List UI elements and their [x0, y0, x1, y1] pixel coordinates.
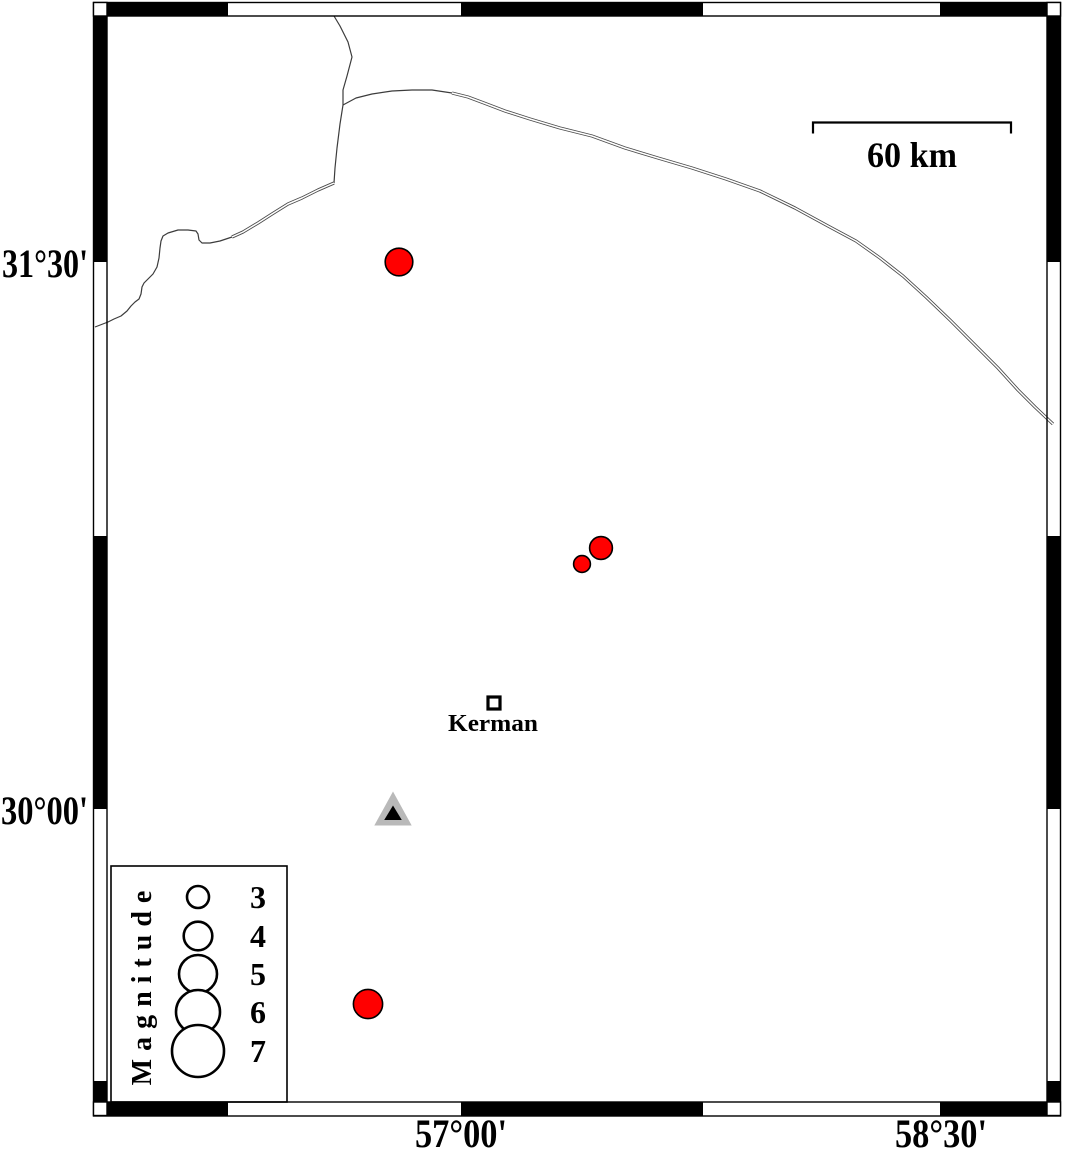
- frame-corner-square-1: [94, 3, 108, 17]
- scale-bar-label: 60 km: [867, 135, 957, 175]
- y-axis-label-top: 31°30': [2, 241, 88, 286]
- city-marker-kerman: [488, 697, 500, 709]
- legend-title: Magnitude: [127, 883, 158, 1086]
- frame-tick-segment-top: [940, 3, 1047, 17]
- legend-circle-mag-5: [179, 955, 217, 993]
- seismicity-map-figure: 34567 31°30' 30°00' 57°00' 58°30' 60 km …: [0, 0, 1066, 1153]
- earthquake-marker-2: [590, 537, 613, 560]
- frame-tick-segment-right: [1047, 536, 1061, 809]
- y-axis-label-bottom: 30°00': [1, 788, 88, 833]
- legend-label-mag-4: 4: [250, 918, 266, 954]
- legend-label-mag-5: 5: [250, 956, 266, 992]
- legend-label-mag-6: 6: [250, 994, 266, 1030]
- frame-tick-segment-left: [94, 16, 108, 262]
- earthquake-marker-4: [353, 989, 382, 1018]
- legend-label-mag-7: 7: [250, 1033, 266, 1069]
- frame-corner-square-4: [1047, 1102, 1061, 1116]
- map-canvas: 34567 31°30' 30°00' 57°00' 58°30' 60 km …: [0, 0, 1066, 1153]
- frame-corner-square-2: [1047, 3, 1061, 17]
- frame-tick-segment-top: [107, 3, 228, 17]
- earthquake-marker-1: [385, 248, 413, 276]
- frame-tick-segment-top: [461, 3, 703, 17]
- legend-circle-mag-4: [184, 922, 213, 951]
- frame-tick-segment-right: [1047, 1081, 1061, 1102]
- frame-tick-segment-left: [94, 1081, 108, 1102]
- legend-label-mag-3: 3: [250, 879, 266, 915]
- legend-circle-mag-7: [172, 1025, 224, 1077]
- frame-corner-square-3: [94, 1102, 108, 1116]
- earthquake-marker-3: [574, 556, 591, 573]
- x-axis-label-left: 57°00': [415, 1111, 507, 1153]
- city-label-kerman: Kerman: [448, 711, 538, 737]
- x-axis-label-right: 58°30': [895, 1111, 987, 1153]
- frame-tick-segment-right: [1047, 16, 1061, 262]
- frame-tick-segment-left: [94, 536, 108, 809]
- legend-circle-mag-3: [187, 886, 209, 908]
- frame-tick-segment-bottom: [107, 1102, 228, 1116]
